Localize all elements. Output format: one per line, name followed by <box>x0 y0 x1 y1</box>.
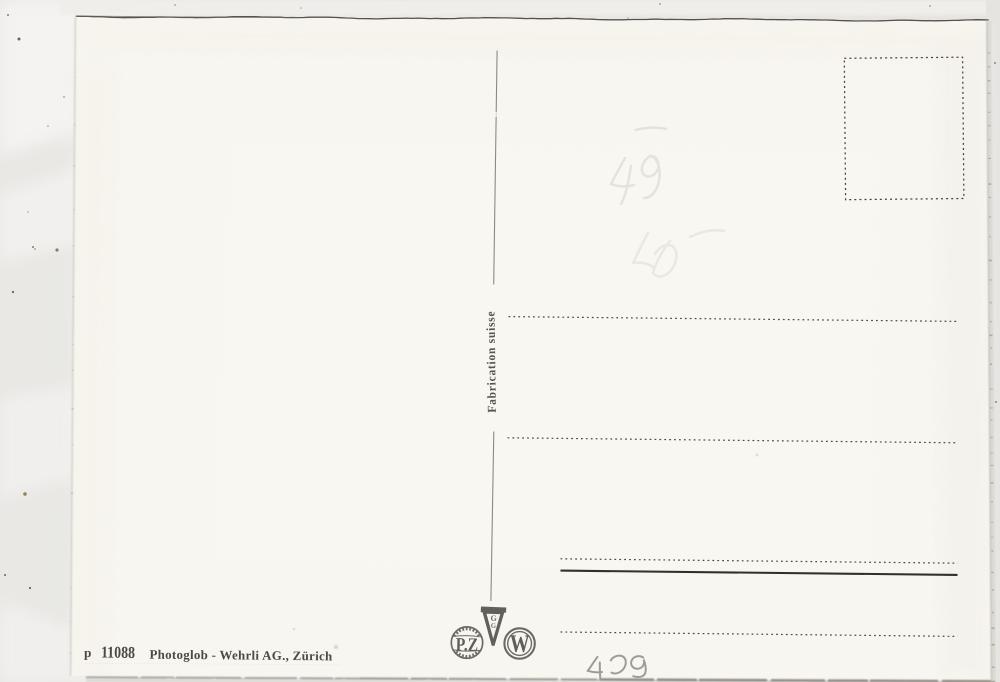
svg-text:11088: 11088 <box>101 643 135 662</box>
svg-text:Fabrication suisse: Fabrication suisse <box>483 311 498 413</box>
svg-text:p: p <box>84 645 91 660</box>
svg-text:G: G <box>490 614 496 623</box>
svg-text:Photoglob - Wehrli AG., Zürich: Photoglob - Wehrli AG., Zürich <box>149 648 332 664</box>
svg-text:P.Z: P.Z <box>456 635 479 656</box>
svg-text:G: G <box>491 623 497 630</box>
svg-text:W: W <box>510 631 530 658</box>
